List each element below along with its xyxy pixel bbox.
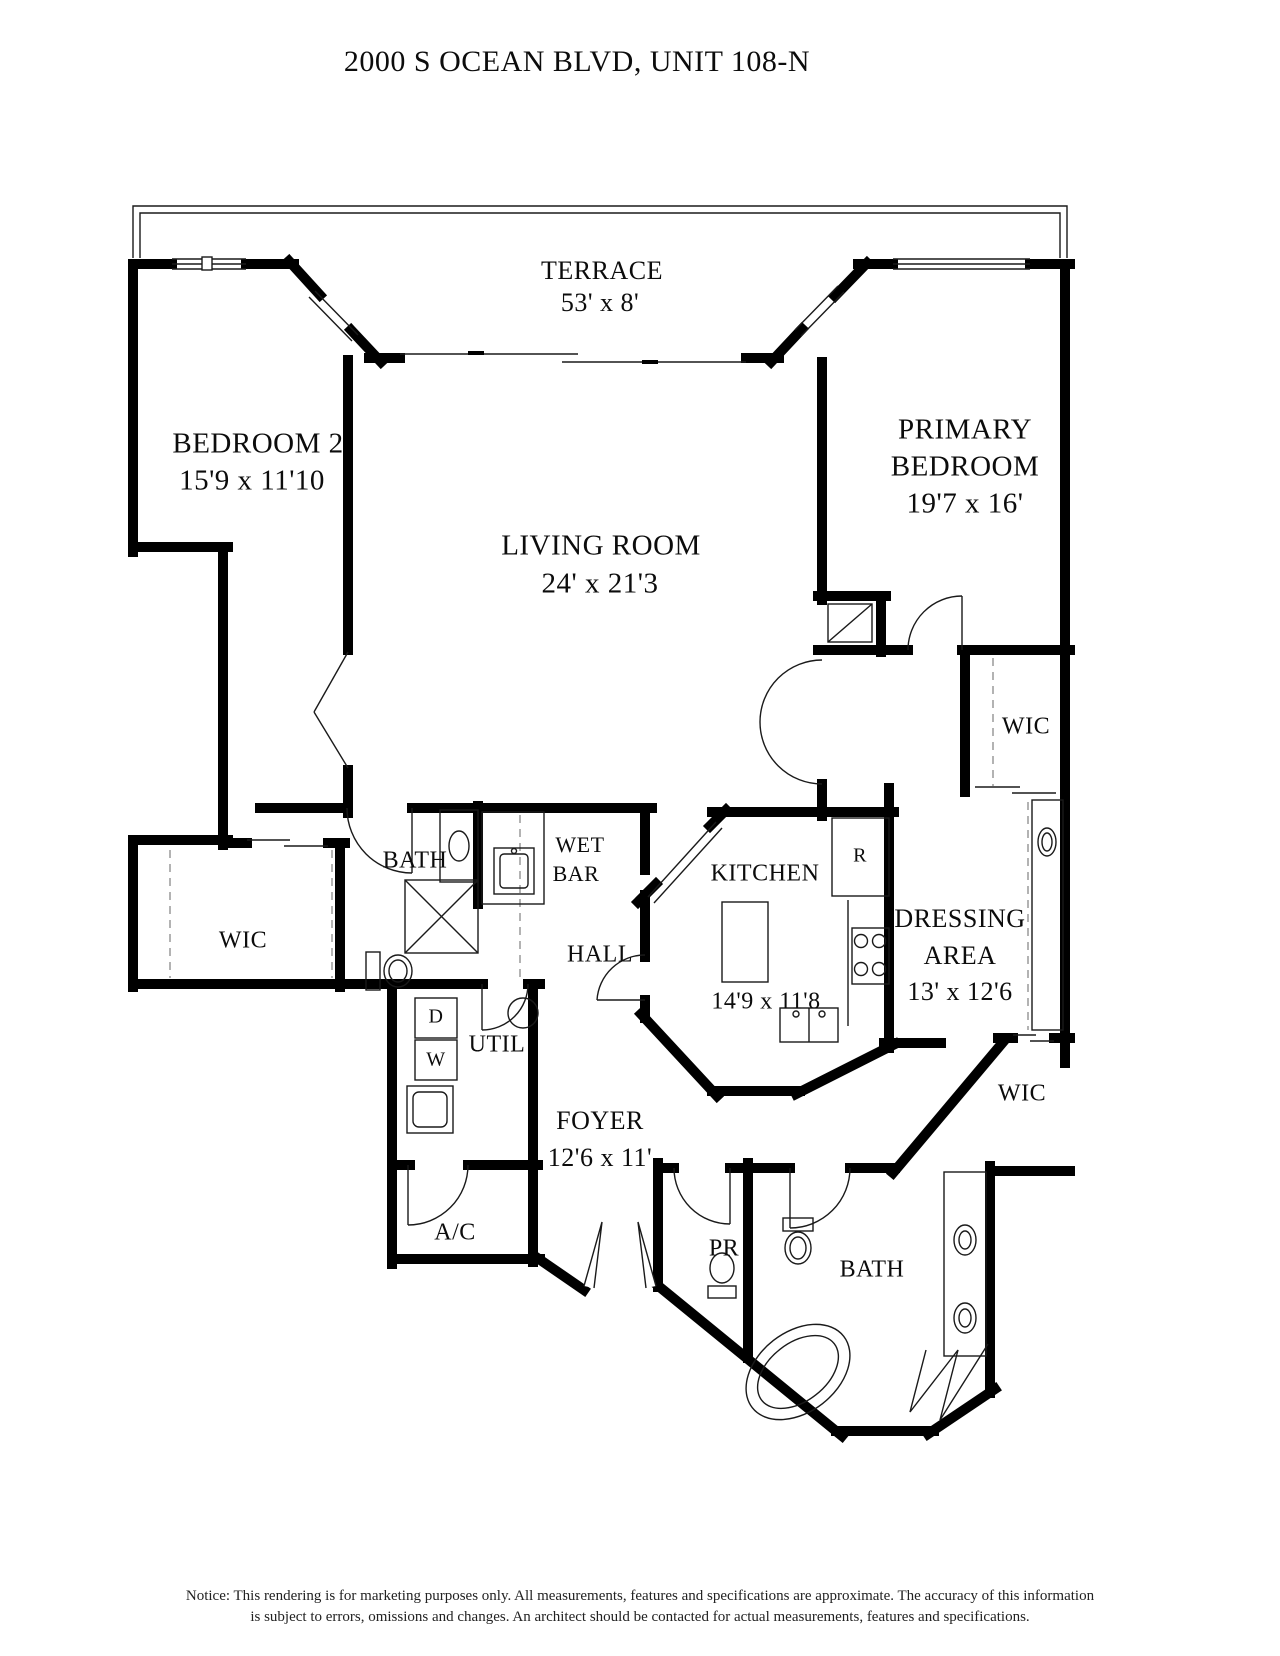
kitchen-island-icon (722, 902, 768, 982)
wic-bottom-right-label: WIC (998, 1081, 1046, 1108)
dryer-label: D (429, 1006, 444, 1029)
terrace-dims: 53' x 8' (561, 288, 639, 318)
primary-bedroom-dims: 19'7 x 16' (907, 488, 1024, 521)
floor-plan-page: 2000 S OCEAN BLVD, UNIT 108-N TERRACE 53… (0, 0, 1280, 1656)
terrace-label: TERRACE (541, 256, 663, 286)
notice-line-2: is subject to errors, omissions and chan… (0, 1609, 1280, 1626)
primary-bedroom-label: PRIMARY (898, 414, 1032, 447)
living-room-label: LIVING ROOM (501, 530, 701, 563)
bedroom2-label: BEDROOM 2 (172, 428, 343, 461)
dressing-area-label2: AREA (924, 941, 997, 971)
living-room-dims: 24' x 21'3 (542, 568, 659, 601)
bath-left-label: BATH (383, 848, 448, 875)
double-vanity-icon (944, 1172, 986, 1356)
wic-top-right-label: WIC (1002, 714, 1050, 741)
dressing-vanity-icon (1032, 800, 1063, 1030)
wic-left-label: WIC (219, 928, 267, 955)
kitchen-label: KITCHEN (711, 861, 820, 888)
foyer-dims: 12'6 x 11' (548, 1143, 652, 1173)
wet-bar-label2: BAR (553, 861, 600, 887)
notice-line-1: Notice: This rendering is for marketing … (0, 1588, 1280, 1605)
toilet-icon (783, 1218, 813, 1231)
laundry-sink-icon (407, 1086, 453, 1133)
refrigerator-label: R (853, 845, 867, 868)
floor-plan-drawing (0, 0, 1280, 1656)
primary-bedroom-label2: BEDROOM (891, 451, 1040, 484)
bedroom2-dims: 15'9 x 11'10 (179, 465, 325, 498)
wet-bar-label: WET (555, 832, 604, 858)
dressing-area-dims: 13' x 12'6 (907, 977, 1012, 1007)
ac-label: A/C (434, 1220, 476, 1247)
pr-label: PR (709, 1236, 739, 1263)
terrace-outline (133, 206, 1067, 258)
bath-bottom-label: BATH (840, 1257, 905, 1284)
fixtures (366, 604, 1063, 1439)
hall-label: HALL (567, 942, 633, 969)
washer-label: W (426, 1049, 445, 1072)
doors (314, 596, 962, 1288)
page-title: 2000 S OCEAN BLVD, UNIT 108-N (344, 45, 810, 79)
dressing-area-label: DRESSING (894, 904, 1025, 934)
wetbar-counter-icon (482, 812, 544, 904)
util-label: UTIL (469, 1032, 526, 1059)
kitchen-dims: 14'9 x 11'8 (711, 989, 820, 1016)
foyer-label: FOYER (556, 1106, 644, 1136)
